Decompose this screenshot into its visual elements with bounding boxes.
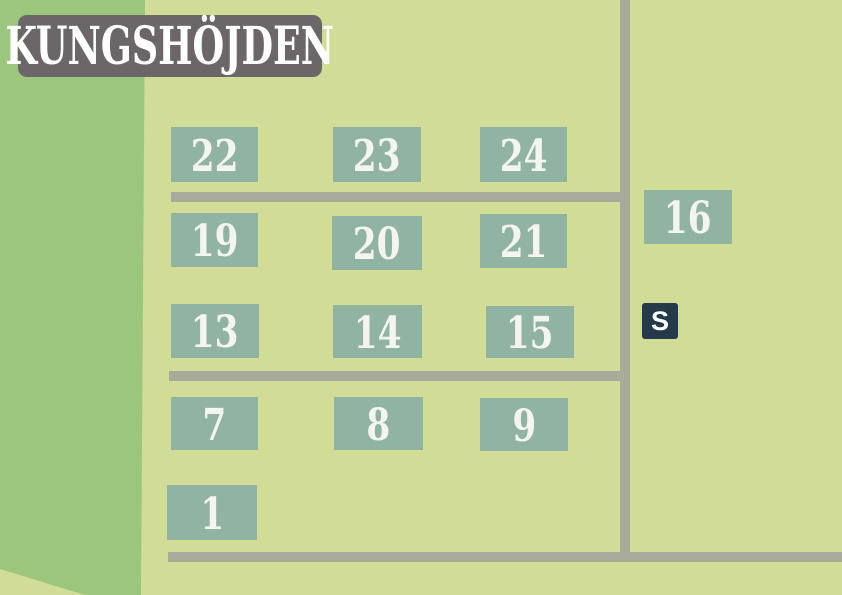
service-marker-label: S — [651, 306, 669, 337]
plot-16-label: 16 — [664, 193, 712, 241]
plot-21: 21 — [480, 214, 567, 268]
field-strip — [0, 0, 146, 595]
map-canvas: KUNGSHÖJDEN 22 23 24 19 20 21 13 14 15 7… — [0, 0, 842, 595]
plot-15: 15 — [486, 306, 574, 358]
plot-8: 8 — [334, 397, 423, 450]
plot-13-label: 13 — [191, 307, 239, 355]
plot-1: 1 — [167, 485, 257, 540]
plot-8-label: 8 — [367, 400, 391, 448]
road-vertical — [620, 0, 630, 562]
road-upper — [171, 192, 630, 202]
plot-24: 24 — [480, 127, 567, 182]
map-title-banner: KUNGSHÖJDEN — [18, 15, 322, 77]
plot-20: 20 — [332, 216, 422, 270]
road-bottom — [168, 552, 842, 562]
map-title: KUNGSHÖJDEN — [6, 19, 335, 73]
plot-15-label: 15 — [506, 308, 554, 356]
service-marker: S — [642, 303, 678, 339]
plot-20-label: 20 — [353, 219, 401, 267]
plot-23-label: 23 — [353, 131, 401, 179]
plot-22-label: 22 — [191, 131, 239, 179]
road-middle — [169, 371, 630, 381]
plot-19-label: 19 — [191, 216, 239, 264]
plot-13: 13 — [171, 304, 259, 358]
plot-1-label: 1 — [200, 489, 224, 537]
plot-16: 16 — [644, 190, 732, 244]
plot-9-label: 9 — [512, 401, 536, 449]
plot-23: 23 — [333, 127, 421, 182]
plot-7: 7 — [171, 397, 258, 450]
plot-7-label: 7 — [203, 400, 227, 448]
plot-22: 22 — [171, 127, 258, 182]
plot-19: 19 — [171, 213, 258, 267]
plot-9: 9 — [480, 398, 568, 451]
plot-14-label: 14 — [354, 308, 402, 356]
plot-24-label: 24 — [500, 131, 548, 179]
plot-14: 14 — [333, 305, 422, 358]
plot-21-label: 21 — [500, 217, 548, 265]
